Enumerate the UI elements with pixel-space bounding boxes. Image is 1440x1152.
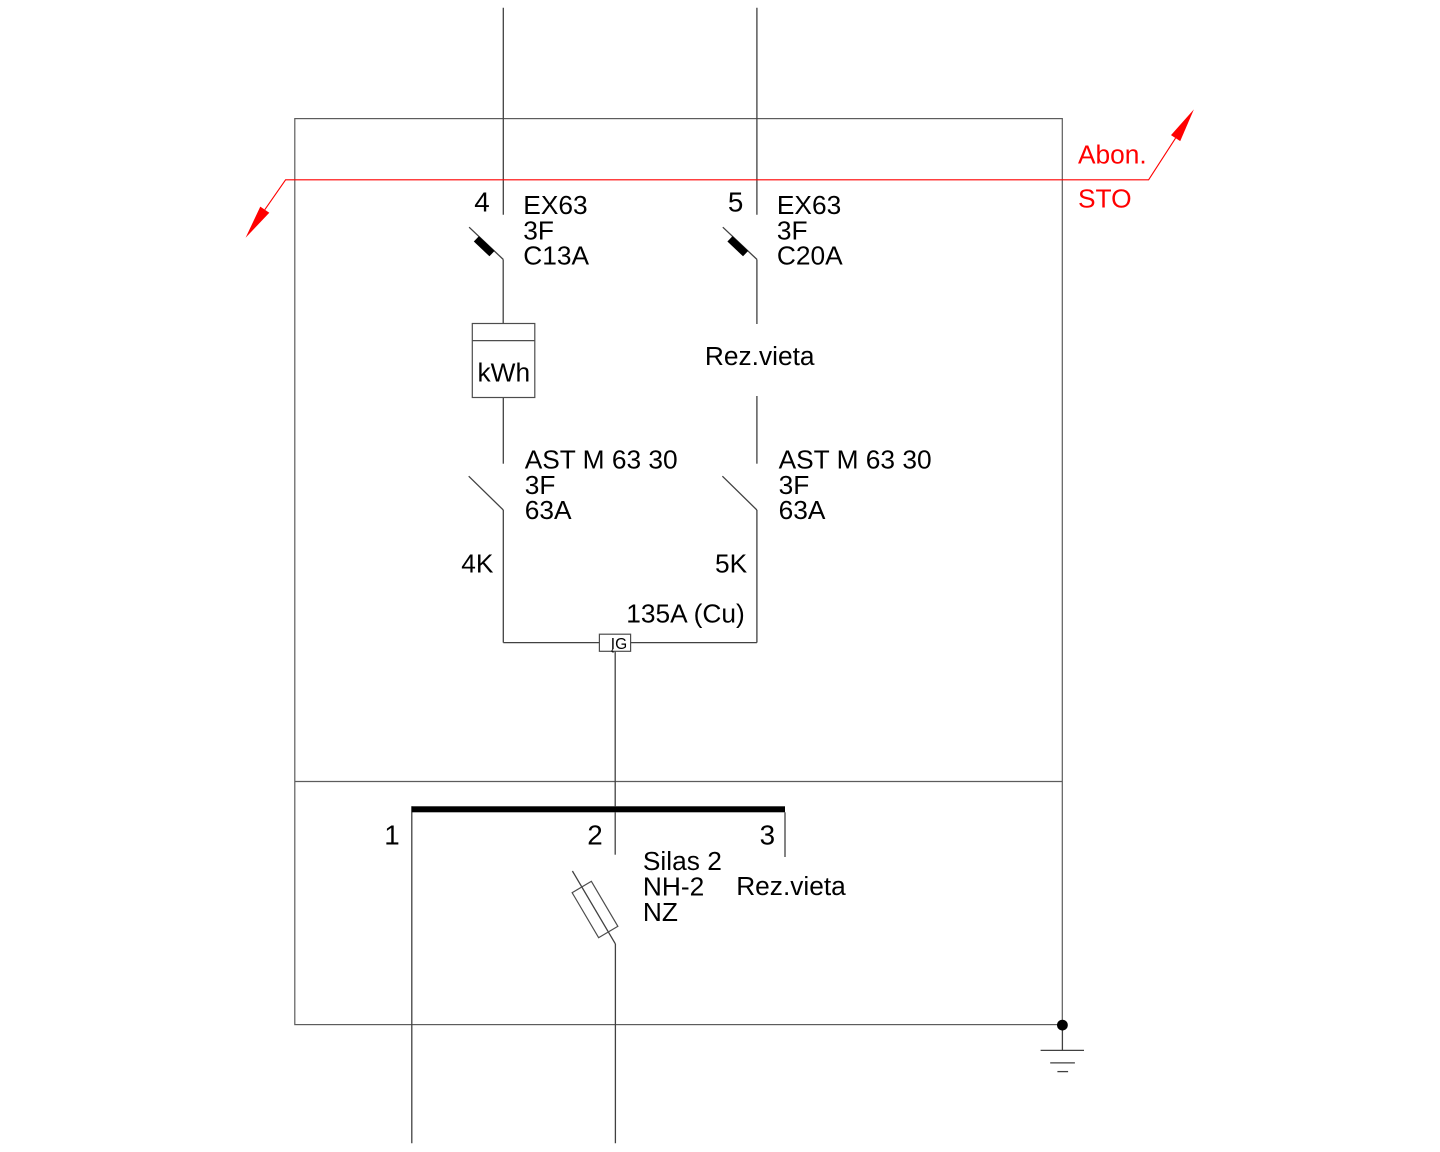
svg-text:C20A: C20A	[777, 240, 843, 270]
svg-text:3: 3	[760, 820, 775, 851]
svg-text:63A: 63A	[525, 495, 572, 525]
svg-text:4: 4	[474, 186, 489, 217]
svg-text:Rez.vieta: Rez.vieta	[705, 341, 815, 371]
svg-text:NZ: NZ	[643, 897, 678, 927]
svg-text:63A: 63A	[779, 495, 826, 525]
svg-text:C13A: C13A	[523, 240, 589, 270]
svg-text:1: 1	[384, 820, 399, 851]
svg-text:4K: 4K	[461, 549, 494, 579]
svg-text:Abon.: Abon.	[1078, 140, 1147, 170]
svg-text:ĮG: ĮG	[611, 636, 627, 653]
svg-text:kWh: kWh	[478, 358, 531, 388]
svg-text:5: 5	[728, 186, 743, 217]
svg-text:STO: STO	[1078, 184, 1132, 214]
svg-text:135A (Cu): 135A (Cu)	[626, 599, 744, 629]
svg-text:Rez.vieta: Rez.vieta	[736, 871, 846, 901]
svg-text:5K: 5K	[715, 549, 748, 579]
svg-text:2: 2	[587, 820, 602, 851]
